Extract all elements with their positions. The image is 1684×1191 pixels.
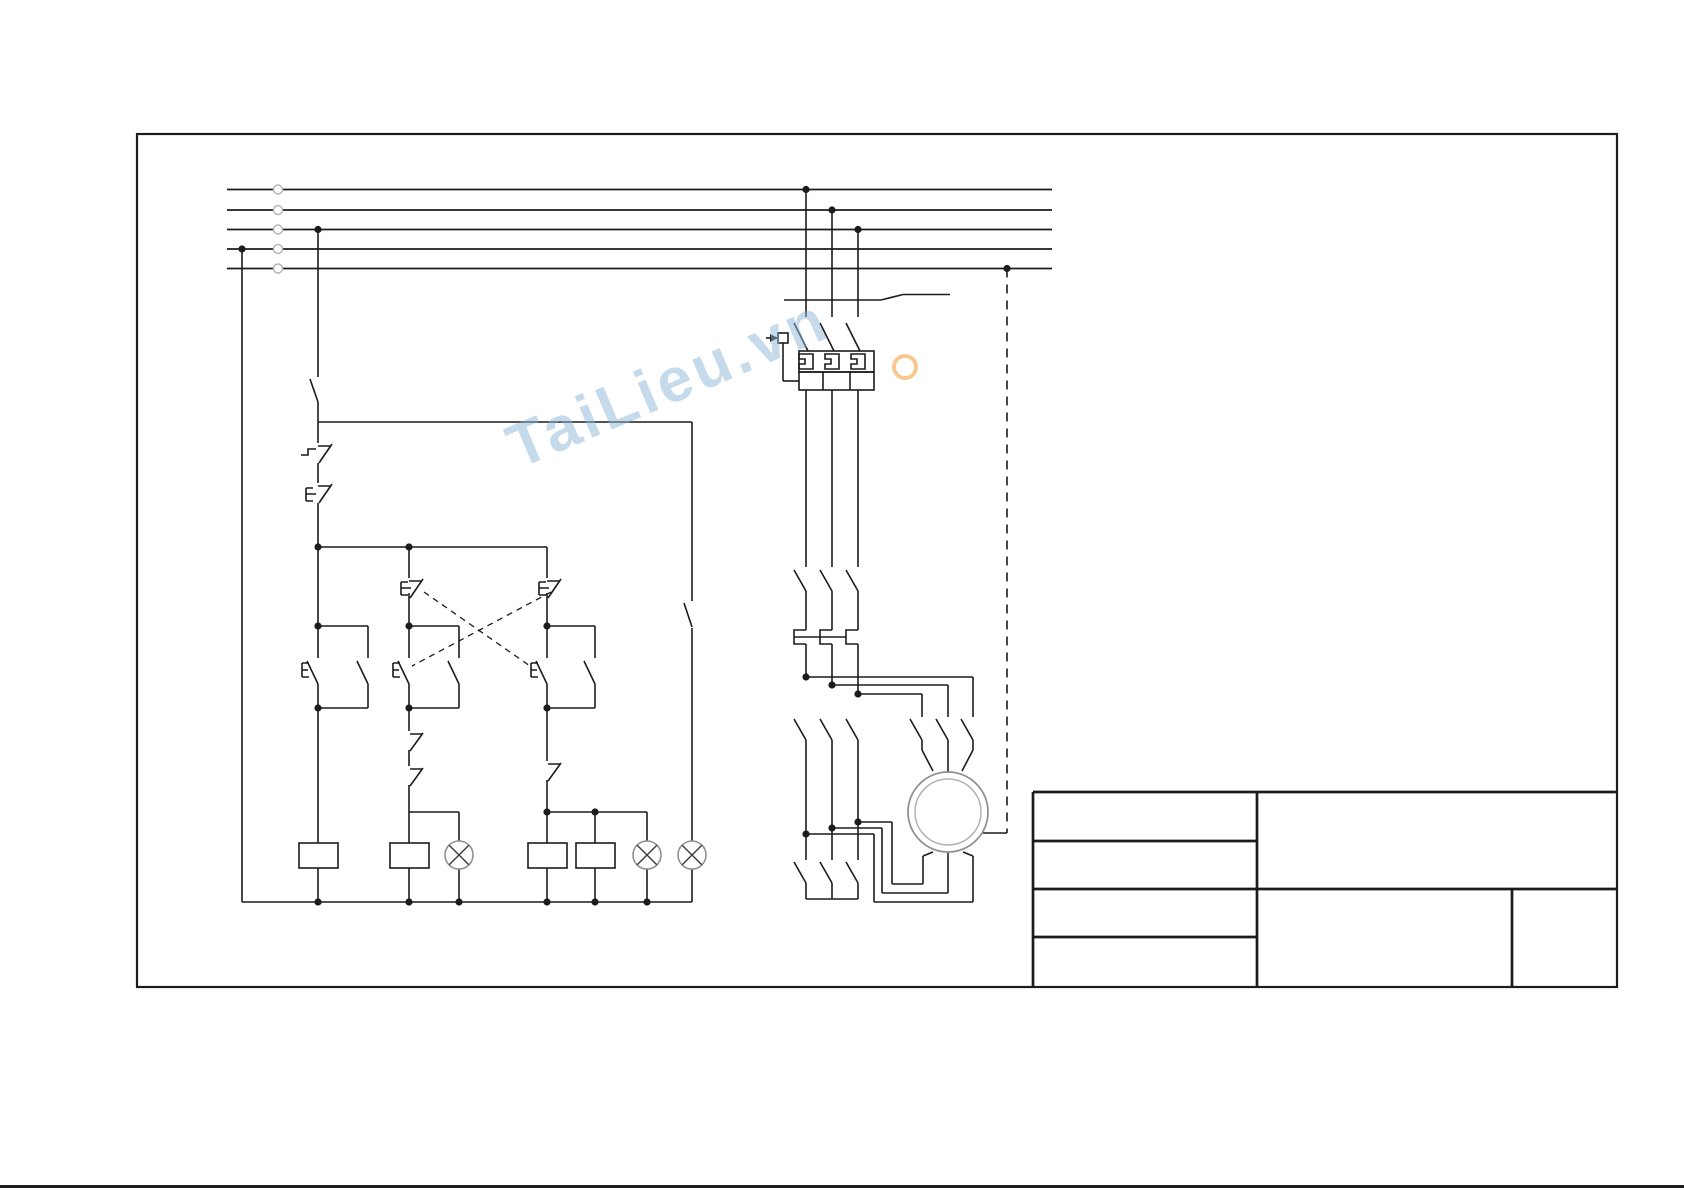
main-contactor-blade-1	[794, 570, 806, 591]
junction-dot	[802, 186, 809, 193]
junction-dot	[405, 543, 412, 550]
lamp-branch-switch-blade	[684, 603, 692, 627]
bus-terminal-3	[274, 225, 283, 234]
thermal-nc-contact	[301, 444, 332, 463]
contactor-coil-1	[299, 843, 338, 868]
contactor-coil-3	[528, 843, 567, 868]
speed2-contactor-blade-2	[936, 719, 948, 740]
overload-heater-3	[846, 630, 858, 644]
breaker-pole-blade-1	[794, 323, 808, 351]
indicator-lamp-1-cross	[449, 845, 469, 865]
junction-dot	[314, 898, 321, 905]
start-button-1	[302, 661, 318, 684]
wire-segment	[922, 750, 933, 771]
motor-symbol-inner	[915, 779, 981, 845]
watermark-accent-ring	[894, 356, 916, 378]
stop-button-nc-contact	[306, 484, 332, 503]
bus-terminal-4	[274, 245, 283, 254]
wire-segment	[923, 852, 933, 856]
motor-symbol-outer	[908, 772, 988, 852]
breaker-pole-blade-3	[846, 323, 860, 351]
junction-dot	[802, 830, 809, 837]
aux-nc-contact-1	[410, 733, 423, 751]
star-contactor-blade-2	[820, 862, 832, 883]
junction-dot	[854, 226, 861, 233]
junction-dot	[543, 622, 550, 629]
breaker-trip-arrow	[770, 334, 778, 342]
schematic-canvas	[0, 0, 1684, 1191]
junction-dot	[591, 898, 598, 905]
junction-dot	[543, 898, 550, 905]
speed1-contactor-blade-2	[820, 719, 832, 740]
speed1-contactor-blade-1	[794, 719, 806, 740]
junction-dot	[543, 704, 550, 711]
drawing-border	[137, 134, 1617, 987]
junction-dot	[854, 818, 861, 825]
aux-nc-contact-3	[548, 763, 561, 781]
holding-contact-2	[448, 661, 459, 684]
junction-dot	[405, 704, 412, 711]
junction-dot	[405, 622, 412, 629]
indicator-lamp-3-cross	[682, 845, 702, 865]
junction-dot	[1003, 265, 1010, 272]
start-button-2	[393, 661, 409, 684]
junction-dot	[455, 898, 462, 905]
junction-dot	[854, 690, 861, 697]
wire-segment	[962, 750, 973, 771]
bus-terminal-2	[274, 206, 283, 215]
contactor-coil-4	[576, 843, 615, 868]
breaker-latch-2	[825, 354, 839, 369]
bus-terminal-1	[274, 185, 283, 194]
star-contactor-blade-3	[846, 862, 858, 883]
mechanical-interlock-dash-1	[424, 592, 530, 666]
wire-segment	[963, 852, 973, 856]
breaker-lower-body	[799, 372, 874, 390]
speed1-contactor-blade-3	[846, 719, 858, 740]
junction-dot	[314, 226, 321, 233]
bus-terminal-5	[274, 264, 283, 273]
junction-dot	[828, 206, 835, 213]
breaker-latch-1	[799, 354, 813, 369]
indicator-lamp-2-cross	[637, 845, 657, 865]
junction-dot	[828, 681, 835, 688]
aux-nc-contact-2	[410, 768, 423, 786]
mechanical-interlock-dash-2	[412, 592, 551, 666]
breaker-pole-blade-2	[820, 323, 834, 351]
junction-dot	[543, 808, 550, 815]
junction-dot	[238, 245, 245, 252]
main-contactor-blade-2	[820, 570, 832, 591]
junction-dot	[643, 898, 650, 905]
junction-dot	[405, 898, 412, 905]
junction-dot	[591, 808, 598, 815]
speed2-contactor-blade-1	[910, 719, 922, 740]
control-knife-switch-blade	[310, 379, 318, 402]
holding-contact-1	[357, 661, 368, 684]
drawing-page: TaiLieu.vn	[0, 0, 1684, 1191]
main-contactor-blade-3	[846, 570, 858, 591]
star-contactor-blade-1	[794, 862, 806, 883]
junction-dot	[314, 543, 321, 550]
holding-contact-3	[584, 661, 595, 684]
speed2-contactor-blade-3	[961, 719, 973, 740]
interlock-nc-contact-1	[401, 579, 423, 598]
wire-segment	[881, 295, 903, 301]
breaker-latch-3	[851, 354, 865, 369]
start-button-3	[531, 661, 547, 684]
junction-dot	[314, 704, 321, 711]
junction-dot	[828, 824, 835, 831]
contactor-coil-2	[390, 843, 429, 868]
breaker-trip-button	[778, 333, 788, 343]
junction-dot	[802, 673, 809, 680]
interlock-nc-contact-2	[539, 579, 561, 598]
junction-dot	[314, 622, 321, 629]
